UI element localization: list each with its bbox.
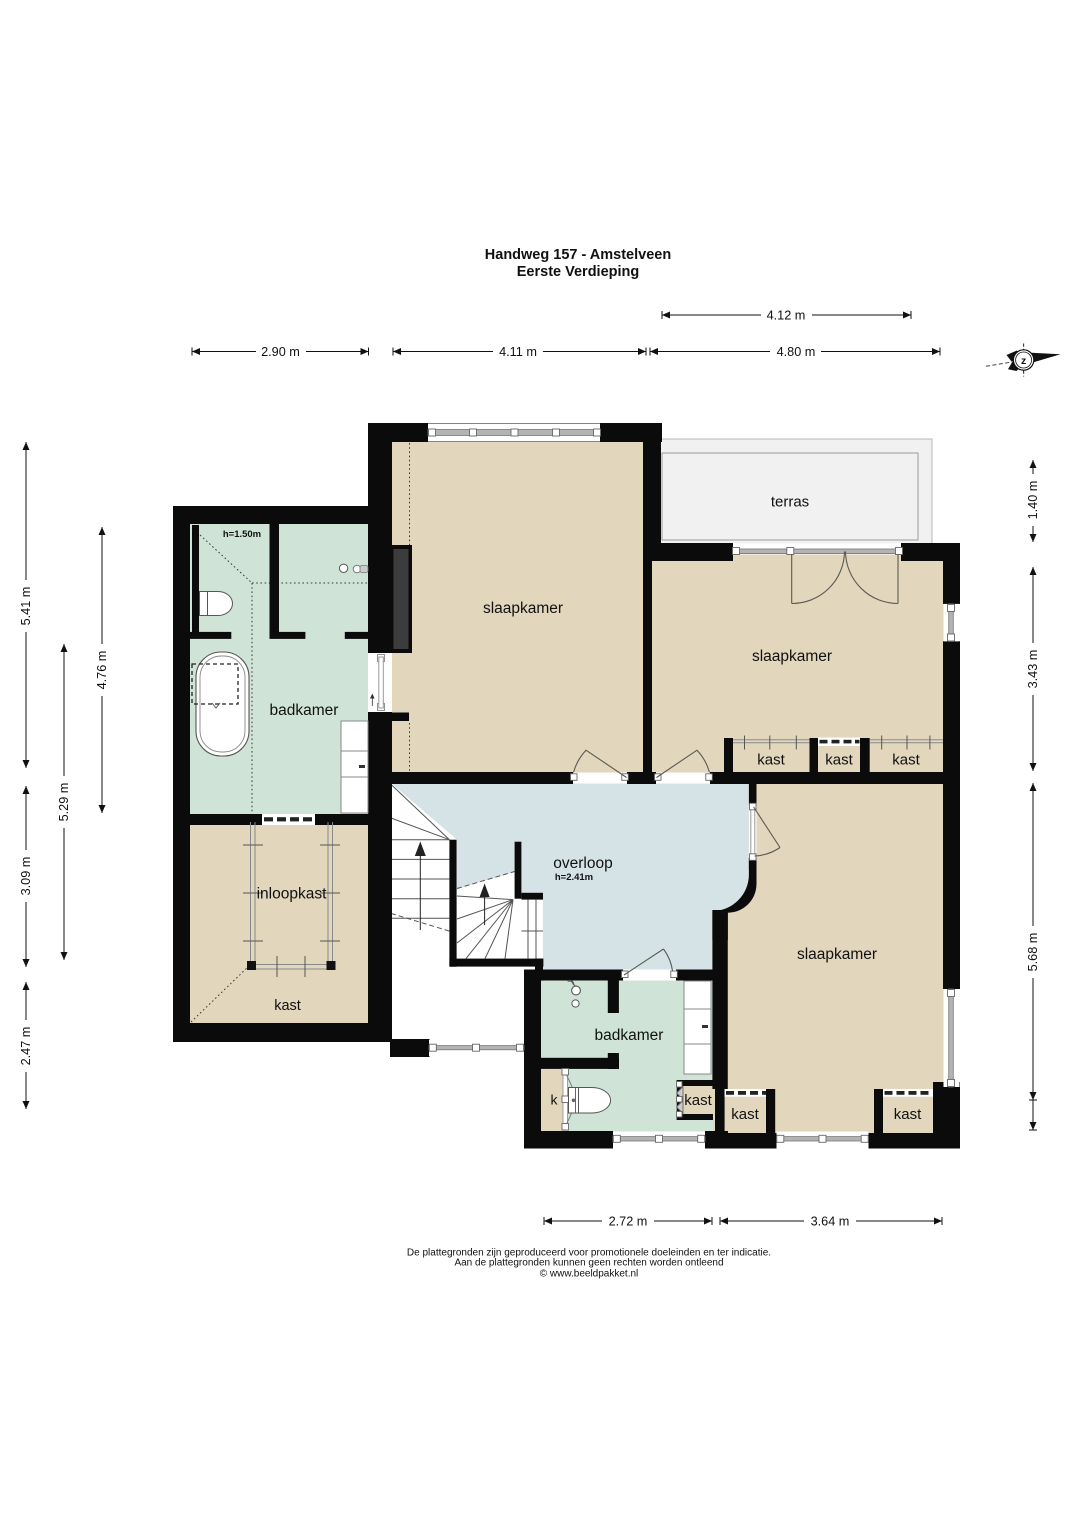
svg-text:slaapkamer: slaapkamer xyxy=(483,600,563,617)
svg-text:3.43 m: 3.43 m xyxy=(1026,650,1040,689)
svg-text:terras: terras xyxy=(771,494,809,511)
svg-text:kast: kast xyxy=(894,1106,922,1123)
svg-text:2.90 m: 2.90 m xyxy=(261,345,300,359)
svg-text:Aan de plattegronden kunnen ge: Aan de plattegronden kunnen geen rechten… xyxy=(454,1258,723,1269)
svg-text:© www.beeldpakket.nl: © www.beeldpakket.nl xyxy=(540,1269,639,1280)
svg-text:overloop: overloop xyxy=(553,855,612,872)
svg-text:4.12 m: 4.12 m xyxy=(767,309,806,323)
svg-text:badkamer: badkamer xyxy=(595,1027,664,1044)
svg-text:kast: kast xyxy=(757,752,785,769)
svg-text:3.64 m: 3.64 m xyxy=(811,1215,850,1229)
svg-text:4.76 m: 4.76 m xyxy=(95,651,109,690)
svg-text:slaapkamer: slaapkamer xyxy=(752,648,832,665)
svg-text:5.29 m: 5.29 m xyxy=(57,783,71,822)
svg-text:slaapkamer: slaapkamer xyxy=(797,946,877,963)
svg-text:5.68 m: 5.68 m xyxy=(1026,933,1040,972)
svg-text:h=2.41m: h=2.41m xyxy=(555,872,593,883)
svg-text:4.11 m: 4.11 m xyxy=(499,345,537,359)
svg-text:k: k xyxy=(551,1092,559,1108)
svg-text:5.41 m: 5.41 m xyxy=(19,587,33,626)
svg-text:4.80 m: 4.80 m xyxy=(777,345,816,359)
svg-text:2.72 m: 2.72 m xyxy=(609,1215,648,1229)
svg-text:h=1.50m: h=1.50m xyxy=(223,529,261,540)
svg-text:1.40 m: 1.40 m xyxy=(1026,481,1040,520)
svg-text:kast: kast xyxy=(892,752,920,769)
svg-text:kast: kast xyxy=(731,1106,759,1123)
svg-text:badkamer: badkamer xyxy=(270,702,339,719)
svg-text:kast: kast xyxy=(684,1092,712,1109)
svg-text:z: z xyxy=(1021,355,1026,367)
svg-text:Handweg 157 - Amstelveen: Handweg 157 - Amstelveen xyxy=(485,247,671,263)
svg-text:kast: kast xyxy=(274,998,301,1014)
svg-text:3.09 m: 3.09 m xyxy=(19,857,33,896)
svg-text:2.47 m: 2.47 m xyxy=(19,1027,33,1066)
svg-text:kast: kast xyxy=(825,752,853,769)
svg-text:Eerste Verdieping: Eerste Verdieping xyxy=(517,264,640,280)
svg-text:inloopkast: inloopkast xyxy=(257,886,327,903)
